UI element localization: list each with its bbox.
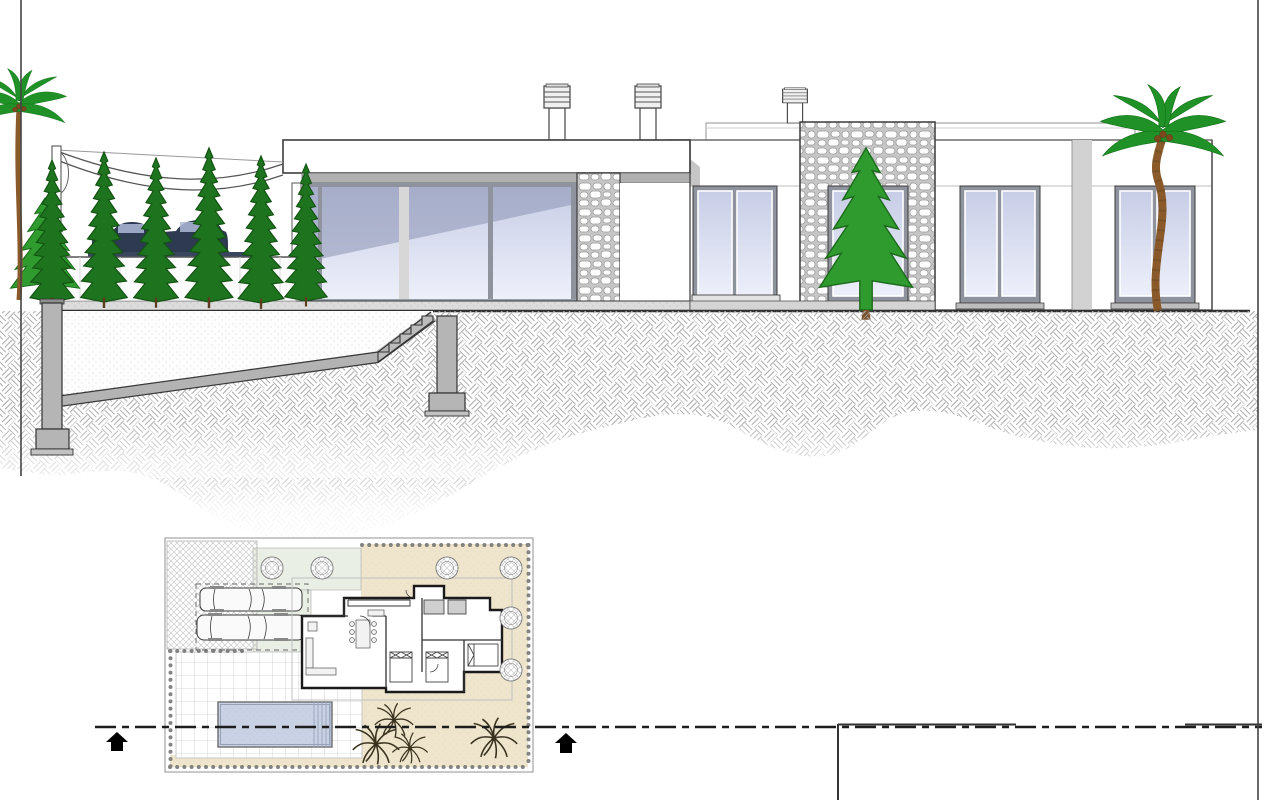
plan-tree-icon: [500, 557, 522, 579]
window: [956, 186, 1044, 309]
ground-section: [0, 299, 1258, 558]
plan-tree-icon: [500, 607, 522, 629]
car-plan: [200, 586, 302, 612]
title-block-corner: [838, 724, 1262, 800]
chimney-icon: [783, 88, 808, 123]
swimming-pool: [218, 702, 332, 747]
section-arrow-icon: [106, 732, 128, 751]
car-plan: [197, 613, 305, 641]
plan-tree-icon: [311, 557, 333, 579]
architectural-drawing-sheet: [0, 0, 1280, 800]
plan-tree-icon: [261, 557, 283, 579]
section-arrow-icon: [555, 733, 577, 753]
elevation-drawing: [0, 69, 1250, 320]
carport-cars: [196, 584, 308, 650]
main-living-volume: [283, 140, 690, 310]
drawing-canvas: [0, 0, 1280, 800]
roof-fascia: [283, 140, 690, 173]
stone-pillar: [577, 173, 620, 310]
plan-tree-icon: [436, 557, 458, 579]
window: [689, 186, 781, 309]
glass-wall: [306, 187, 571, 299]
corner-shadow: [1072, 140, 1092, 310]
plan-tree-icon: [500, 659, 522, 681]
soffit: [302, 173, 690, 183]
floor-plan: [165, 538, 533, 772]
chimney-icon: [544, 84, 570, 140]
chimney-icon: [635, 84, 661, 140]
